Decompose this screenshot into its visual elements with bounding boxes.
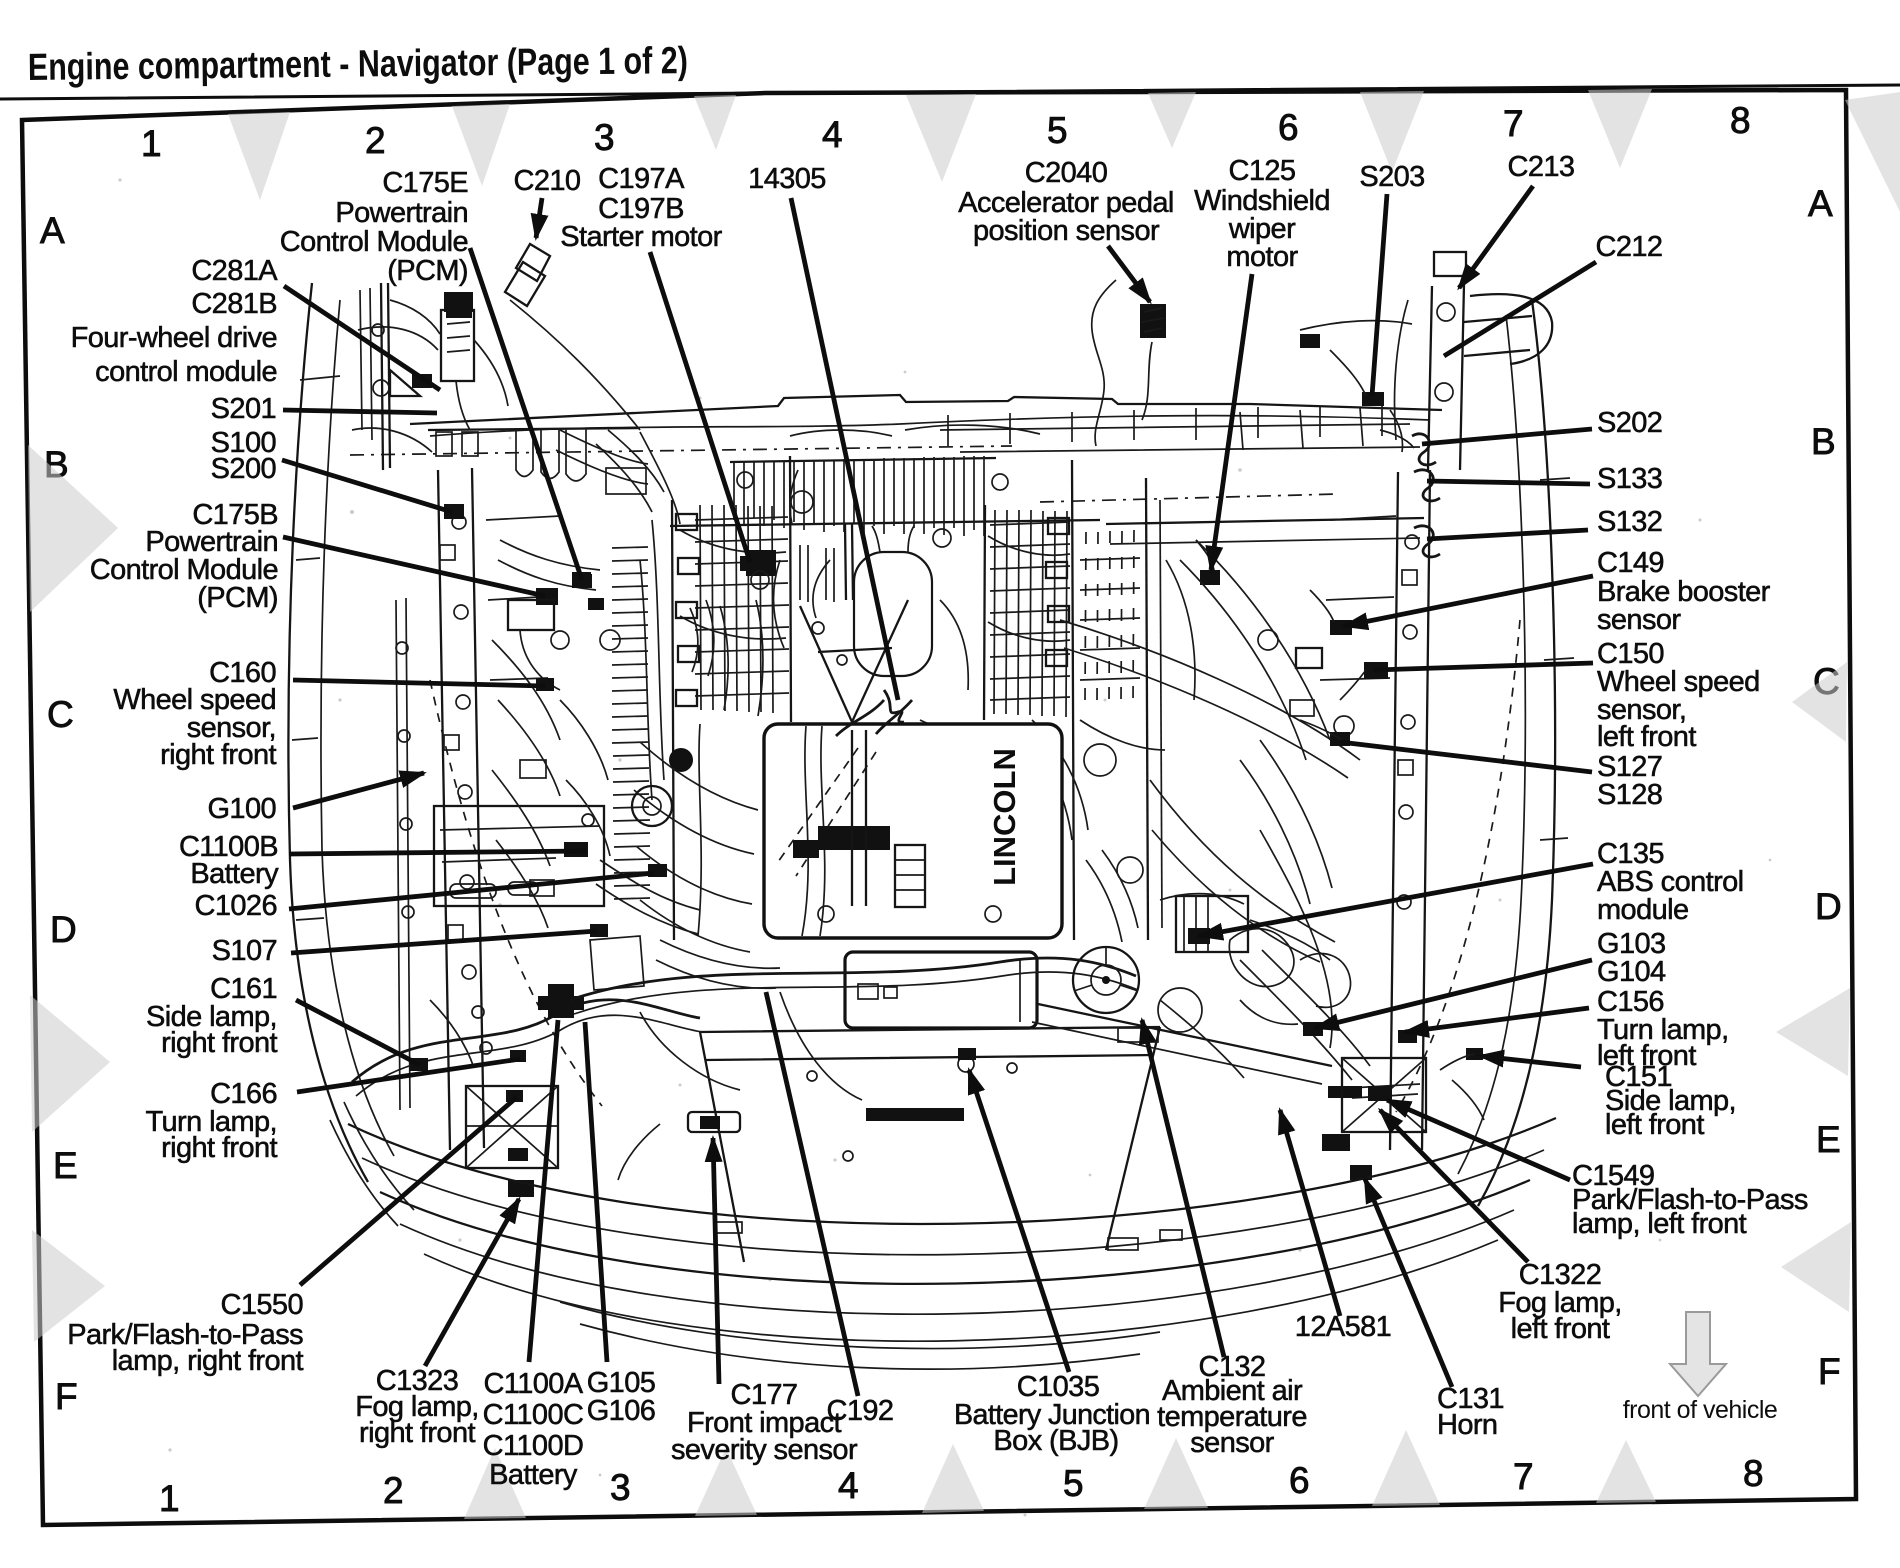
svg-text:7: 7 (1503, 103, 1524, 144)
svg-text:A: A (1808, 183, 1833, 224)
svg-text:control module: control module (95, 356, 277, 388)
svg-text:3: 3 (610, 1467, 631, 1508)
svg-text:right front: right front (161, 1027, 277, 1059)
svg-text:right front: right front (160, 739, 276, 771)
svg-text:C213: C213 (1508, 151, 1575, 183)
svg-text:C212: C212 (1596, 231, 1663, 263)
svg-text:Battery: Battery (489, 1459, 578, 1491)
svg-text:S203: S203 (1359, 161, 1424, 193)
svg-text:14305: 14305 (748, 163, 826, 195)
svg-text:sensor: sensor (1190, 1427, 1274, 1459)
svg-text:1: 1 (159, 1478, 180, 1519)
svg-text:Starter motor: Starter motor (560, 221, 722, 253)
svg-text:4: 4 (838, 1465, 859, 1506)
svg-text:F: F (1818, 1351, 1841, 1392)
svg-text:C149: C149 (1597, 547, 1664, 579)
svg-text:left front: left front (1597, 721, 1696, 753)
svg-text:S132: S132 (1597, 506, 1662, 538)
svg-text:E: E (53, 1145, 78, 1186)
svg-text:C1550: C1550 (221, 1289, 303, 1321)
svg-text:Battery: Battery (190, 858, 279, 890)
svg-text:5: 5 (1063, 1463, 1084, 1504)
svg-text:A: A (40, 210, 65, 251)
svg-text:(PCM): (PCM) (387, 255, 468, 287)
svg-text:B: B (1811, 421, 1836, 462)
svg-text:5: 5 (1047, 110, 1068, 151)
svg-text:lamp, right front: lamp, right front (112, 1345, 304, 1377)
svg-text:6: 6 (1289, 1460, 1310, 1501)
svg-text:Engine compartment - Navigator: Engine compartment - Navigator (Page 1 o… (28, 40, 688, 89)
svg-text:C281A: C281A (191, 255, 278, 287)
svg-text:sensor: sensor (1597, 604, 1681, 636)
svg-text:S200: S200 (211, 453, 276, 485)
svg-text:C175E: C175E (382, 167, 468, 199)
svg-text:position sensor: position sensor (973, 215, 1160, 247)
svg-text:left front: left front (1511, 1313, 1610, 1345)
svg-text:D: D (1815, 886, 1842, 927)
svg-text:C1026: C1026 (195, 890, 277, 922)
svg-text:12A581: 12A581 (1295, 1311, 1391, 1343)
svg-text:G100: G100 (207, 793, 276, 825)
svg-text:left front: left front (1605, 1109, 1704, 1141)
svg-text:Horn: Horn (1437, 1409, 1497, 1441)
svg-text:8: 8 (1730, 100, 1751, 141)
svg-text:6: 6 (1278, 107, 1299, 148)
svg-text:lamp, left front: lamp, left front (1572, 1208, 1747, 1240)
svg-text:C1100A: C1100A (483, 1368, 583, 1400)
svg-text:G106: G106 (587, 1395, 656, 1427)
svg-text:(PCM): (PCM) (197, 582, 278, 614)
svg-text:S202: S202 (1597, 407, 1662, 439)
svg-text:S128: S128 (1597, 779, 1662, 811)
svg-text:D: D (50, 909, 77, 950)
svg-text:motor: motor (1226, 241, 1298, 273)
svg-text:G104: G104 (1597, 956, 1666, 988)
svg-text:severity sensor: severity sensor (671, 1434, 858, 1466)
svg-text:front of vehicle: front of vehicle (1623, 1396, 1778, 1424)
svg-text:C192: C192 (827, 1395, 894, 1427)
svg-text:module: module (1597, 894, 1689, 926)
svg-text:7: 7 (1513, 1456, 1534, 1497)
svg-text:C197A: C197A (598, 163, 685, 195)
svg-text:F: F (55, 1376, 78, 1417)
svg-text:S133: S133 (1597, 463, 1662, 495)
svg-text:4: 4 (822, 114, 843, 155)
svg-text:C210: C210 (514, 165, 581, 197)
svg-text:right front: right front (161, 1132, 277, 1164)
svg-text:C125: C125 (1229, 155, 1296, 187)
svg-text:Four-wheel drive: Four-wheel drive (71, 322, 277, 354)
svg-text:S107: S107 (212, 935, 277, 967)
svg-text:C2040: C2040 (1025, 157, 1107, 189)
svg-text:3: 3 (594, 117, 615, 158)
svg-text:1: 1 (141, 123, 162, 164)
svg-text:LINCOLN: LINCOLN (987, 748, 1022, 886)
svg-text:S201: S201 (211, 393, 276, 425)
svg-text:Box (BJB): Box (BJB) (993, 1425, 1118, 1457)
svg-text:C1100D: C1100D (483, 1430, 584, 1462)
svg-text:C: C (47, 694, 74, 735)
svg-text:right front: right front (359, 1417, 475, 1449)
svg-text:Control Module: Control Module (280, 226, 468, 258)
svg-text:E: E (1816, 1119, 1841, 1160)
svg-text:2: 2 (383, 1470, 404, 1511)
svg-text:C281B: C281B (191, 288, 277, 320)
svg-text:8: 8 (1743, 1453, 1764, 1494)
svg-text:2: 2 (365, 120, 386, 161)
svg-text:C1100C: C1100C (483, 1399, 584, 1431)
svg-text:Powertrain: Powertrain (335, 197, 468, 229)
